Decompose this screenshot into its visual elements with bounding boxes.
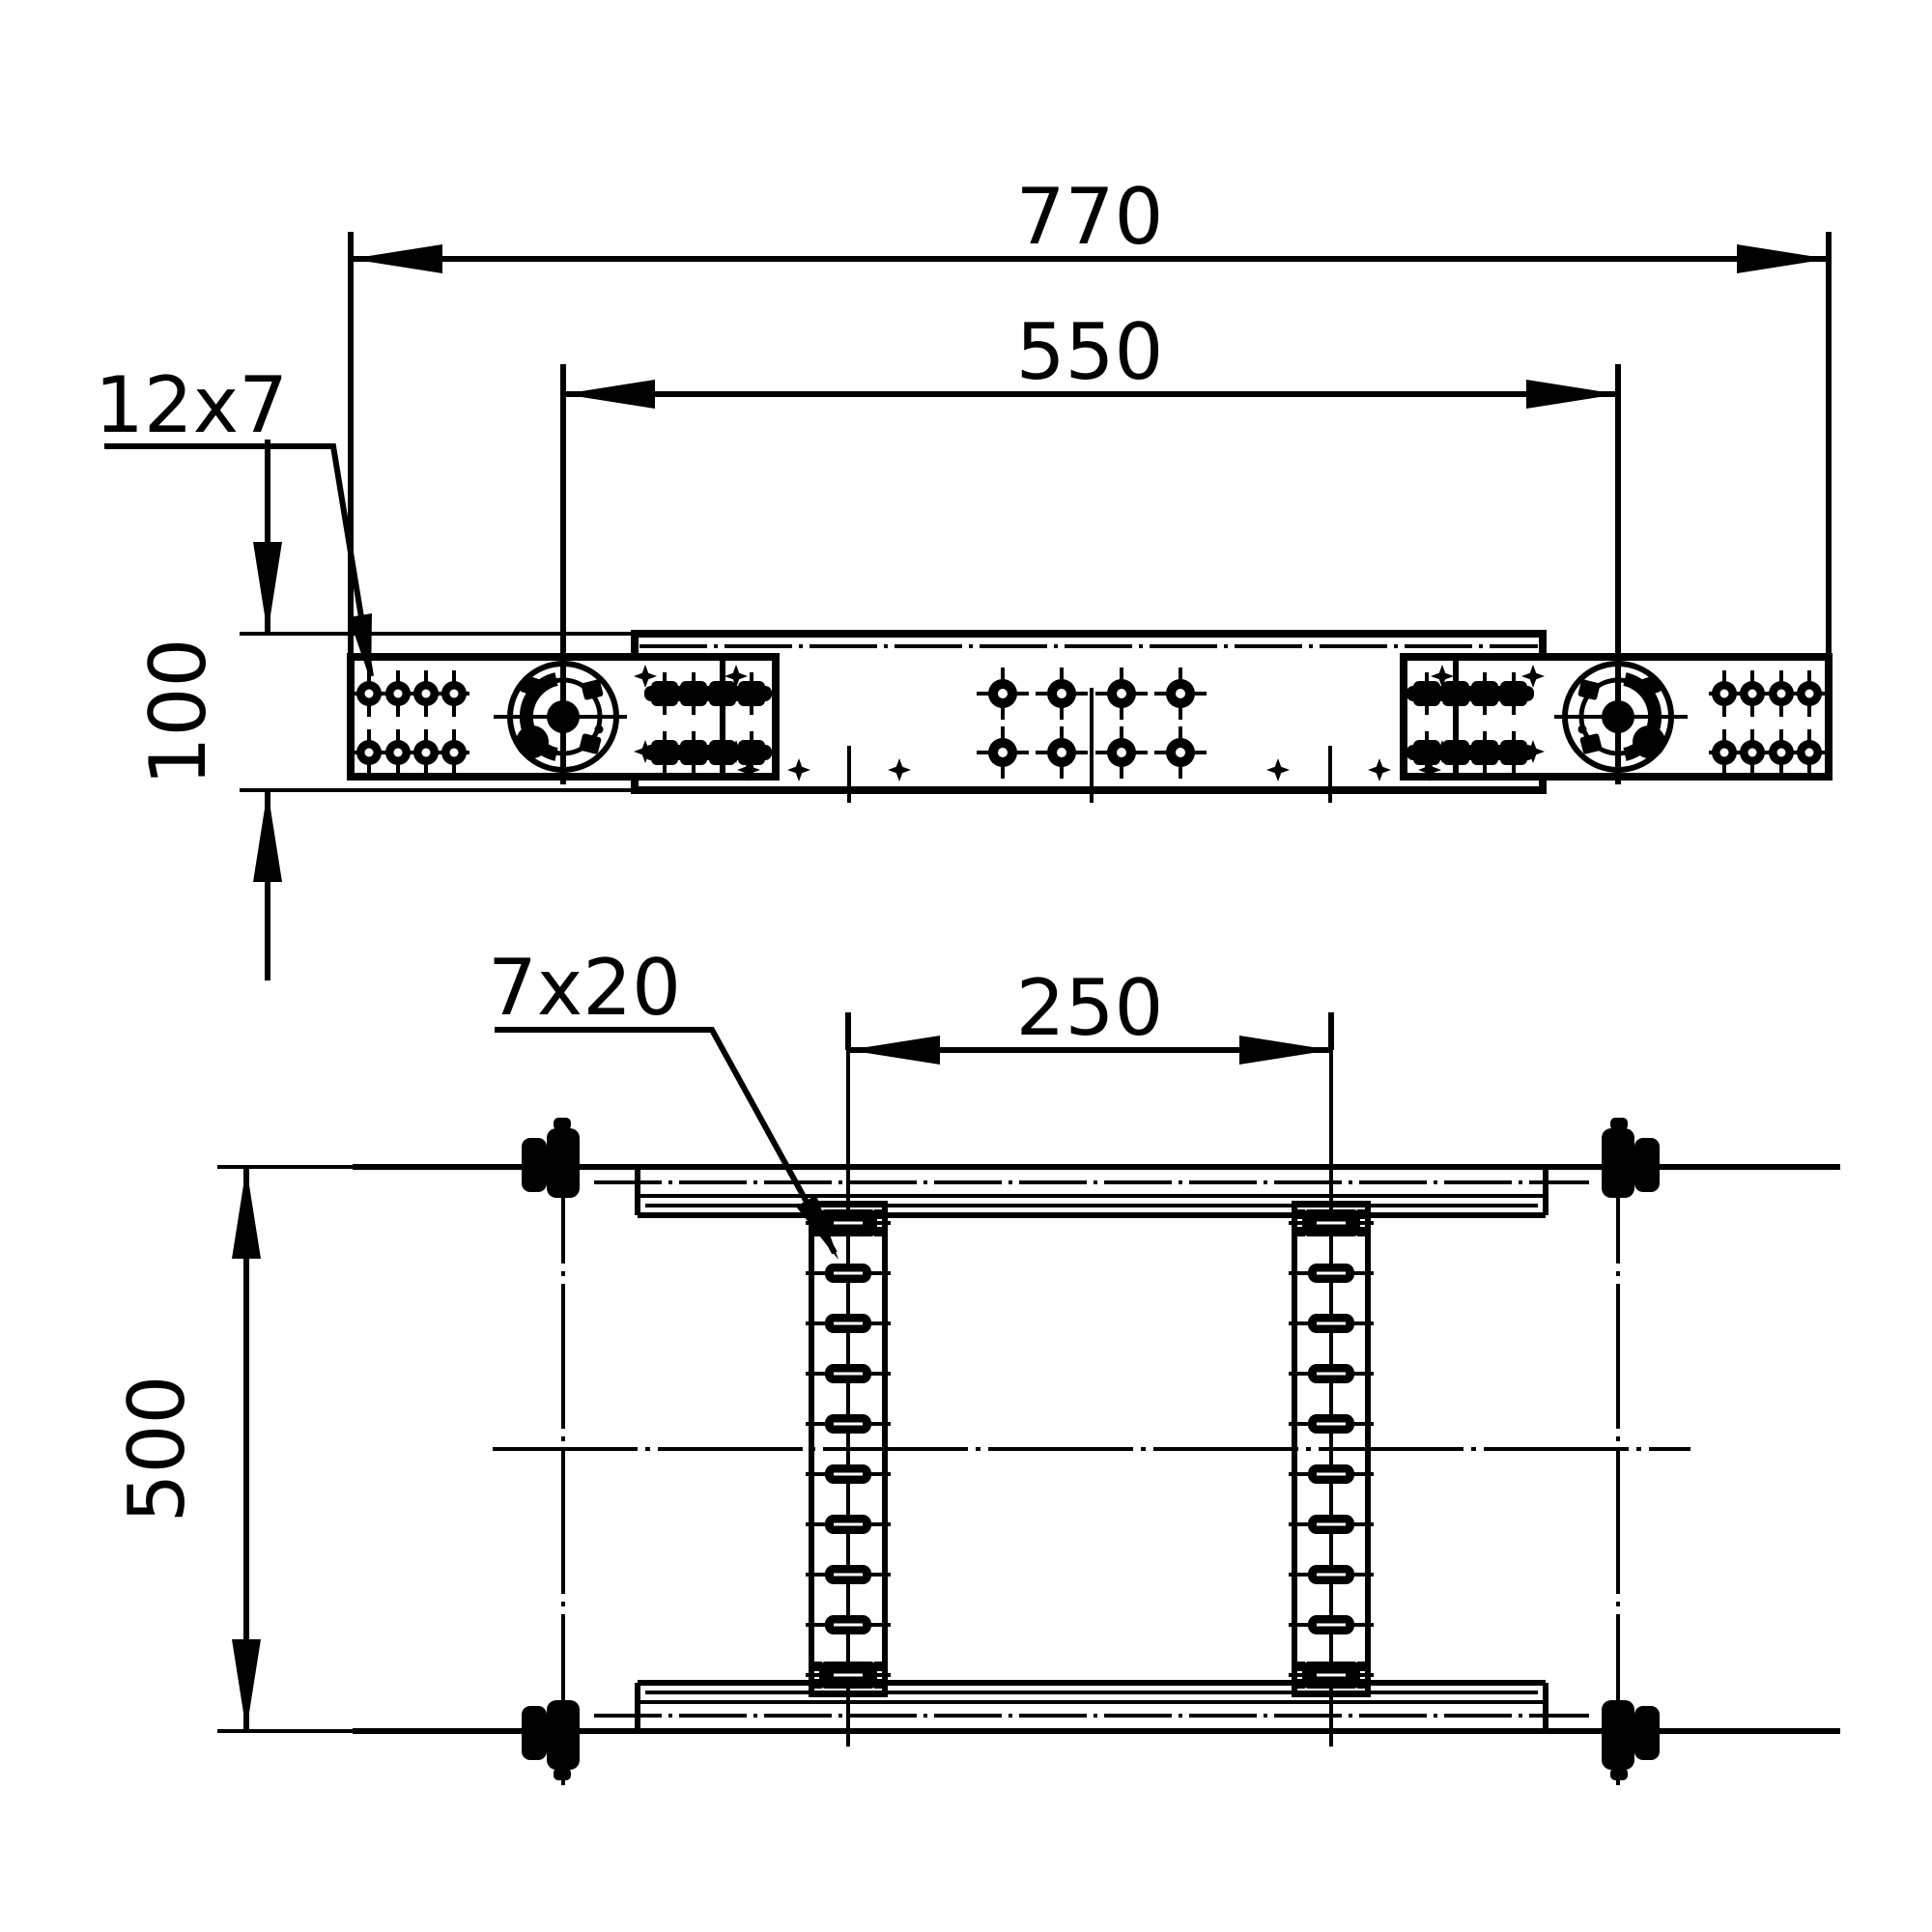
technical-drawing: 770 550 100 12x7	[0, 0, 1932, 1932]
top-chord	[638, 1167, 1546, 1215]
dimension-overall-width: 500	[112, 1167, 359, 1731]
clamp-bolt-top-left	[522, 1118, 580, 1198]
bottom-chord	[638, 1683, 1546, 1731]
callout-label-7x20: 7x20	[488, 943, 681, 1033]
dim-label-100: 100	[133, 639, 223, 786]
clamp-bolt-bottom-right	[1602, 1700, 1660, 1780]
bolt-cluster-left-inner	[644, 672, 772, 774]
marker-stars	[634, 665, 1545, 781]
bolt-cluster-right-outer	[1712, 670, 1822, 776]
clamp-bolt-bottom-left	[522, 1700, 580, 1780]
top-view	[351, 630, 1829, 803]
drawing-sheet: 770 550 100 12x7	[0, 0, 1932, 1932]
dimension-rail-spacing: 250	[848, 963, 1331, 1065]
bottom-view	[315, 1012, 1840, 1785]
dim-label-550: 550	[1016, 307, 1164, 397]
bolt-cluster-right-inner	[1406, 672, 1534, 774]
clamp-bolt-top-right	[1602, 1118, 1660, 1198]
dim-label-250: 250	[1016, 963, 1164, 1053]
callout-label-12x7: 12x7	[95, 360, 288, 450]
dim-label-770: 770	[1016, 172, 1164, 262]
dimension-overall-length: 770	[351, 172, 1829, 653]
callout-slot-size: 7x20	[488, 943, 838, 1260]
dim-label-500: 500	[112, 1376, 202, 1523]
bolt-cluster-left-outer	[356, 670, 467, 776]
